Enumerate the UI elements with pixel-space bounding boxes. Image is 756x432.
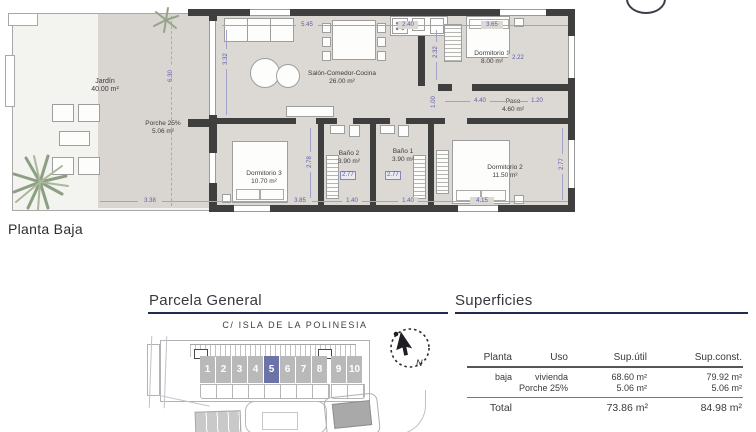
window <box>568 36 575 78</box>
dimension-label: 6.30 <box>167 66 175 86</box>
north-compass-partial-icon <box>626 0 666 14</box>
row-sup-const: 5.06 m² <box>670 383 742 393</box>
porche-floor <box>98 14 217 208</box>
north-compass-icon: N <box>385 324 435 374</box>
dimension-label: 1.40 <box>398 197 418 205</box>
col-header-sup-const: Sup.const. <box>670 352 742 363</box>
toilet <box>349 125 360 137</box>
window <box>250 9 290 16</box>
bathroom-sink <box>330 125 345 134</box>
compass-n-label: N <box>416 358 423 368</box>
wall-dorm3-bano2 <box>318 124 324 205</box>
row-uso: vivienda <box>500 372 568 382</box>
garden-chair <box>52 104 74 122</box>
porche-divider-line <box>171 16 172 206</box>
pool-inner <box>262 412 298 430</box>
row-sup-util: 5.06 m² <box>575 383 647 393</box>
garden-chair <box>78 104 100 122</box>
window <box>458 205 498 212</box>
plot-5-highlighted: 5 <box>264 356 279 383</box>
palm-tree-icon <box>4 146 76 218</box>
room-label-bano2: Baño 2 3.90 m² <box>326 150 372 166</box>
dimension-label: 1.20 <box>528 97 546 105</box>
parcela-title-rule <box>148 312 448 314</box>
chair <box>322 51 331 61</box>
garden-notch <box>8 13 38 26</box>
dimension-label: 3.32 <box>222 49 230 69</box>
fridge <box>430 18 444 34</box>
toilet <box>398 125 409 137</box>
street-label: C/ ISLA DE LA POLINESIA <box>200 320 390 330</box>
dimension-box: 2.77 <box>340 171 356 180</box>
garden-notch <box>5 55 15 107</box>
dimension-label: 3.65 <box>481 21 503 29</box>
plot-3: 3 <box>232 356 247 383</box>
room-label-dorm3: Dormitorio 3 10.70 m² <box>224 170 304 186</box>
plot-9: 9 <box>331 356 346 383</box>
dimension-line <box>226 30 227 115</box>
total-sup-const: 84.98 m² <box>670 402 742 414</box>
superficies-title: Superficies <box>455 292 533 309</box>
chair <box>377 37 386 47</box>
plot-8: 8 <box>312 356 327 383</box>
table-total-rule <box>467 397 743 398</box>
tree-icon <box>150 4 182 36</box>
sideboard <box>286 106 334 117</box>
door-opening <box>445 118 467 124</box>
dimension-line <box>100 201 568 202</box>
total-label: Total <box>455 402 512 414</box>
room-label-porche: Porche 25% 5.06 m² <box>128 120 198 136</box>
dimension-label: 1.00 <box>430 92 438 112</box>
road-curve <box>365 390 426 432</box>
total-sup-util: 73.86 m² <box>575 402 648 414</box>
plot-row: 1 2 3 4 5 6 7 8 9 10 <box>200 356 362 383</box>
plot-6: 6 <box>280 356 295 383</box>
window <box>568 140 575 188</box>
sofa <box>224 18 294 42</box>
plot-1: 1 <box>200 356 215 383</box>
dimension-label: 2.77 <box>558 154 566 174</box>
door-opening <box>390 118 406 124</box>
chair <box>377 51 386 61</box>
room-label-dorm2: Dormitorio 2 11.50 m² <box>465 164 545 180</box>
plan-caption: Planta Baja <box>8 221 83 237</box>
porche-sliding-door <box>209 21 216 115</box>
row-sup-const: 79.92 m² <box>670 372 742 382</box>
row-uso: Porche 25% <box>500 383 568 393</box>
parking-area <box>195 410 242 432</box>
parcela-title: Parcela General <box>149 292 262 309</box>
wall-bano1-dorm2 <box>428 124 434 205</box>
dimension-box: 2.77 <box>385 171 401 180</box>
dimension-label: 2.32 <box>432 42 440 62</box>
room-label-jardin: Jardín 40.00 m² <box>60 78 150 95</box>
plot-2: 2 <box>216 356 231 383</box>
dimension-label: 4.40 <box>470 97 490 105</box>
dimension-label: 1.40 <box>342 197 362 205</box>
wall-left-top <box>209 9 217 21</box>
architectural-plan-page: Jardín 40.00 m² Porche 25% 5.06 m² Salón… <box>0 0 756 432</box>
nightstand <box>514 195 524 204</box>
dimension-label: 2.22 <box>508 54 528 62</box>
dimension-line <box>222 25 568 26</box>
col-header-sup-util: Sup.útil <box>575 352 647 363</box>
dimension-label: 2.78 <box>306 152 314 172</box>
wall-left-bottom <box>209 183 217 212</box>
superficies-title-rule <box>455 312 748 314</box>
garden-table <box>59 131 90 146</box>
chair <box>322 37 331 47</box>
dining-table <box>332 20 376 60</box>
window <box>234 205 270 212</box>
terrace-strip <box>200 384 330 399</box>
window <box>209 153 216 183</box>
window <box>500 9 546 16</box>
door-opening <box>296 118 316 124</box>
door-opening <box>337 118 353 124</box>
plot-4: 4 <box>248 356 263 383</box>
room-label-salon: Salón-Comedor-Cocina 26.00 m² <box>292 70 392 86</box>
plot-10: 10 <box>347 356 362 383</box>
wardrobe <box>436 150 449 194</box>
table-header-rule <box>467 366 743 368</box>
bathroom-sink <box>380 125 395 134</box>
dimension-label: 3.85 <box>288 197 312 205</box>
dimension-label: 5.45 <box>296 21 318 29</box>
col-header-uso: Uso <box>500 352 568 363</box>
dimension-label: 4.15 <box>470 197 494 205</box>
dimension-label: 2.40 <box>398 21 418 29</box>
row-sup-util: 68.60 m² <box>575 372 647 382</box>
garden-chair <box>78 157 100 175</box>
dimension-label: 3.38 <box>138 197 162 205</box>
room-label-bano1: Baño 1 3.90 m² <box>380 148 426 164</box>
door-opening <box>452 84 472 91</box>
plot-7: 7 <box>296 356 311 383</box>
